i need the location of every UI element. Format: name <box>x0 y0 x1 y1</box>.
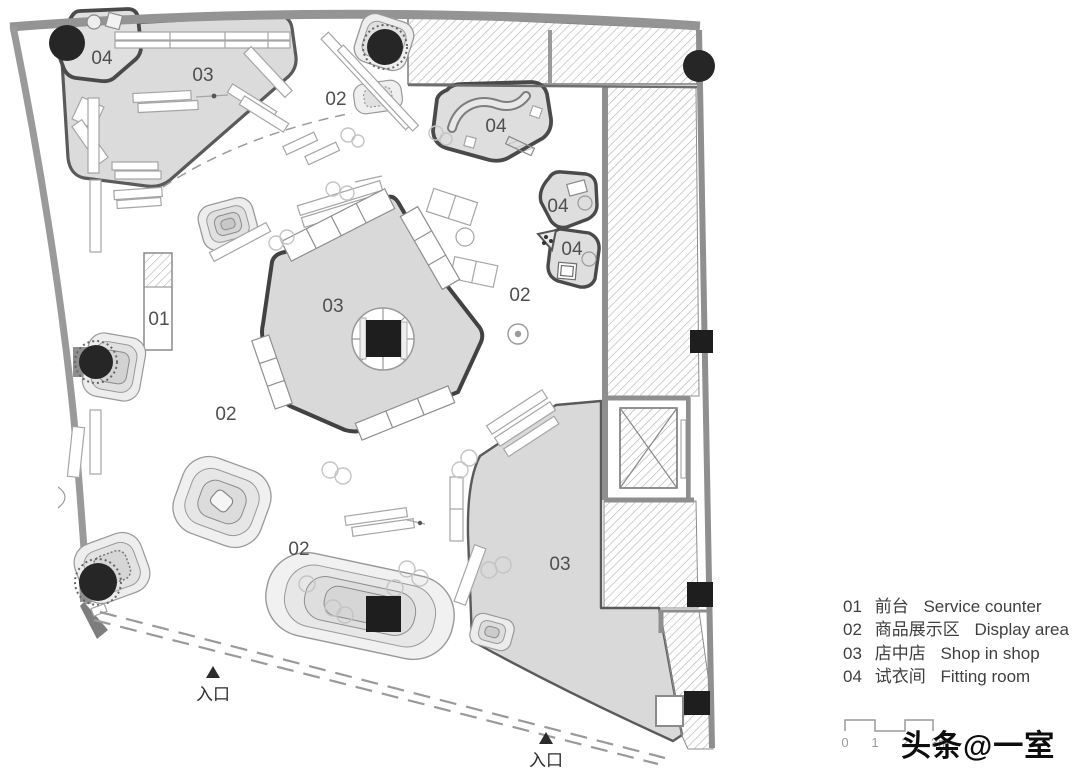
label-display-mid-right: 02 <box>509 285 530 306</box>
legend-code: 03 <box>843 642 870 665</box>
legend-zh: 试衣间 <box>875 667 926 686</box>
label-service-counter: 01 <box>148 309 169 330</box>
legend-en: Shop in shop <box>940 644 1039 663</box>
floor-plan-page: 03 04 02 04 04 04 02 03 01 02 02 03 入口 入… <box>0 0 1074 779</box>
legend-item-03: 03 店中店 Shop in shop <box>843 642 1069 665</box>
label-display-top: 02 <box>325 89 346 110</box>
column-black-bottom <box>366 596 401 632</box>
legend-zh: 前台 <box>875 597 909 616</box>
label-fitting-right-lower: 04 <box>561 239 583 260</box>
column-black-right-upper <box>690 330 713 353</box>
label-shop-center: 03 <box>322 296 343 317</box>
legend-code: 02 <box>843 618 870 641</box>
legend-code: 01 <box>843 595 870 618</box>
column-circle-left-mid <box>79 345 113 379</box>
legend-item-01: 01 前台 Service counter <box>843 595 1069 618</box>
column-circle-left-bottom <box>79 563 117 601</box>
shaft-white-box <box>656 696 683 726</box>
column-circle-top-mid <box>367 29 403 65</box>
label-fitting-top-mid: 04 <box>485 116 507 137</box>
column-black-right-lower <box>687 582 713 607</box>
elevator <box>606 398 690 499</box>
column-circle-top-right <box>683 50 715 82</box>
column-black-bottom-right <box>684 691 710 715</box>
legend-item-02: 02 商品展示区 Display area <box>843 618 1069 641</box>
column-circle-top-left <box>49 25 85 61</box>
watermark: 头条@一室 <box>901 721 1055 765</box>
column-black-center <box>366 320 401 357</box>
legend-en: Fitting room <box>940 667 1030 686</box>
label-display-mid-left: 02 <box>215 404 236 425</box>
entrance-arrow-icon <box>206 666 220 678</box>
entrance-label-bottom: 入口 <box>529 751 563 770</box>
label-shop-bottom-right: 03 <box>549 554 570 575</box>
label-display-bottom: 02 <box>288 539 309 560</box>
scale-tick-0: 0 <box>841 735 848 750</box>
legend-code: 04 <box>843 665 870 688</box>
legend-en: Display area <box>974 620 1069 639</box>
label-fitting-right-upper: 04 <box>547 196 569 217</box>
scale-tick-1: 1 <box>871 735 878 750</box>
legend-zh: 商品展示区 <box>875 620 960 639</box>
legend: 01 前台 Service counter 02 商品展示区 Display a… <box>843 595 1069 689</box>
service-counter-01 <box>144 253 172 350</box>
legend-item-04: 04 试衣间 Fitting room <box>843 665 1069 688</box>
legend-zh: 店中店 <box>875 644 926 663</box>
entrance-label-left: 入口 <box>196 685 230 704</box>
label-shop-top-left: 03 <box>192 65 213 86</box>
legend-en: Service counter <box>923 597 1041 616</box>
label-fitting-top-left: 04 <box>91 48 113 69</box>
